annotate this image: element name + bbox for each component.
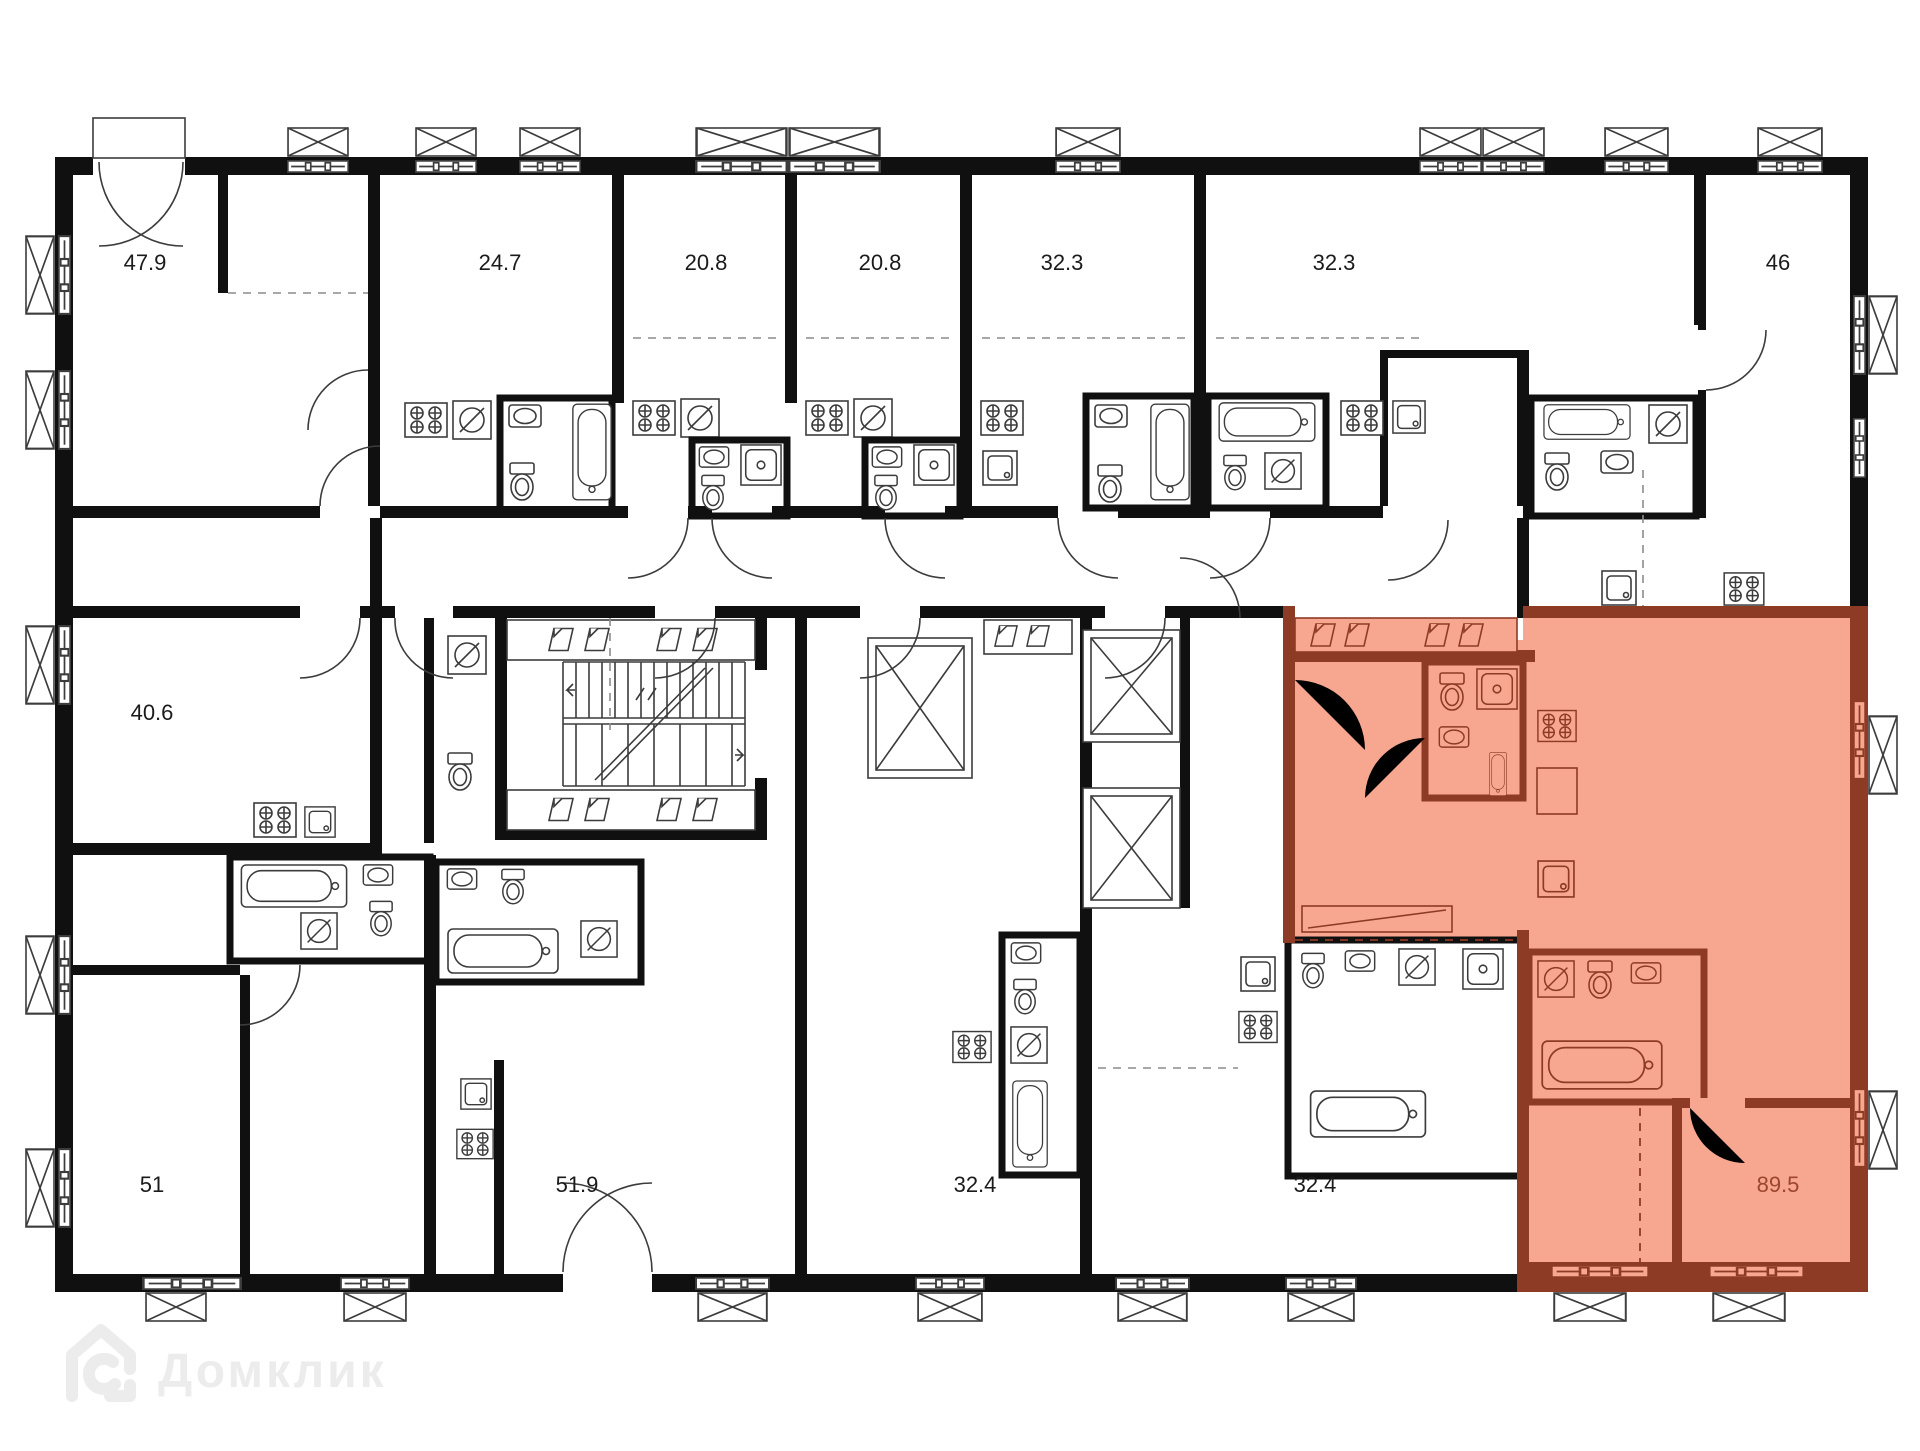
balcony-icon xyxy=(1288,1293,1354,1321)
balcony-icon xyxy=(288,128,348,156)
washer-icon xyxy=(1649,405,1687,443)
balcony-icon xyxy=(520,128,580,156)
window-icon xyxy=(789,161,880,172)
balcony-icon xyxy=(26,626,54,703)
unit-region-24-7[interactable] xyxy=(382,175,612,506)
balcony-icon xyxy=(344,1293,406,1321)
balcony-icon xyxy=(1869,296,1897,373)
unit-area-label-selected: 89.5 xyxy=(1757,1172,1800,1197)
window-icon xyxy=(1483,161,1544,172)
balcony-icon xyxy=(1869,1091,1897,1168)
floorplan-page: 47.9 24.7 20.8 20.8 32.3 32.3 46 40.6 51… xyxy=(0,0,1920,1451)
unit-region-40-6[interactable] xyxy=(71,618,382,843)
unit-area-label: 32.3 xyxy=(1041,250,1084,275)
door-arc-icon xyxy=(395,618,453,678)
balcony-icon xyxy=(1869,716,1897,793)
unit-region-51-9[interactable] xyxy=(436,855,795,1274)
unit-region-20-8-a[interactable] xyxy=(624,175,785,506)
window-icon xyxy=(59,371,70,449)
window-icon xyxy=(59,236,70,314)
window-icon xyxy=(1605,161,1668,172)
unit-region-20-8-b[interactable] xyxy=(797,175,960,506)
unit-area-label: 20.8 xyxy=(859,250,902,275)
domclick-house-icon xyxy=(72,1330,130,1396)
balcony-icon xyxy=(1554,1293,1626,1321)
balcony-icon xyxy=(416,128,476,156)
unit-region-32-4-a[interactable] xyxy=(807,618,1080,1274)
balcony-icon xyxy=(698,1293,767,1321)
watermark-text: Домклик xyxy=(158,1345,387,1398)
porch xyxy=(93,118,185,158)
bathtub-icon xyxy=(1544,405,1630,439)
window-icon xyxy=(696,1278,769,1289)
balcony-icon xyxy=(1605,128,1668,156)
unit-area-label: 47.9 xyxy=(124,250,167,275)
window-icon xyxy=(288,161,348,172)
floorplan-canvas: 47.9 24.7 20.8 20.8 32.3 32.3 46 40.6 51… xyxy=(0,0,1920,1451)
window-icon xyxy=(1758,161,1822,172)
washer-icon xyxy=(448,636,486,674)
cooktop-icon xyxy=(1724,573,1764,605)
door-arc-icon xyxy=(1210,518,1270,578)
window-icon xyxy=(1854,419,1865,477)
balcony-icon xyxy=(26,236,54,313)
toilet-icon xyxy=(448,753,472,790)
balcony-icon xyxy=(790,128,880,156)
unit-area-label: 46 xyxy=(1766,250,1790,275)
balcony-icon xyxy=(1056,128,1120,156)
window-icon xyxy=(1056,161,1120,172)
unit-area-label: 51.9 xyxy=(556,1172,599,1197)
door-arc-icon xyxy=(885,518,945,578)
unit-area-label: 32.4 xyxy=(1294,1172,1337,1197)
toilet-icon xyxy=(1545,453,1569,490)
balcony-icon xyxy=(1758,128,1822,156)
unit-region-51[interactable] xyxy=(71,855,424,1274)
door-arc-icon xyxy=(1058,518,1118,578)
balcony-icon xyxy=(1713,1293,1785,1321)
window-icon xyxy=(341,1278,409,1289)
window-icon xyxy=(1420,161,1481,172)
balcony-icon xyxy=(26,936,54,1013)
unit-area-label: 32.3 xyxy=(1313,250,1356,275)
window-icon xyxy=(1116,1278,1189,1289)
stairs-icon xyxy=(507,620,755,830)
window-icon xyxy=(143,1278,240,1289)
unit-area-label: 32.4 xyxy=(954,1172,997,1197)
window-icon xyxy=(696,161,787,172)
unit-area-label: 24.7 xyxy=(479,250,522,275)
sink-icon xyxy=(1601,451,1633,473)
balcony-icon xyxy=(146,1293,206,1321)
sink-icon xyxy=(1602,571,1636,605)
balcony-icon xyxy=(697,128,787,156)
window-icon xyxy=(416,161,476,172)
balcony-icon xyxy=(26,371,54,448)
balcony-icon xyxy=(1483,128,1544,156)
balcony-icon xyxy=(26,1149,54,1226)
window-icon xyxy=(59,626,70,704)
unit-region-46[interactable] xyxy=(1706,175,1850,506)
balcony-icon xyxy=(1118,1293,1187,1321)
balcony-icon xyxy=(918,1293,982,1321)
unit-region-32-3-a[interactable] xyxy=(972,175,1194,506)
window-icon xyxy=(520,161,580,172)
balcony-icon xyxy=(1420,128,1481,156)
door-arc-icon xyxy=(628,518,688,578)
unit-area-label: 51 xyxy=(140,1172,164,1197)
window-icon xyxy=(916,1278,984,1289)
unit-region-47-9[interactable] xyxy=(71,175,368,506)
window-icon xyxy=(59,936,70,1014)
window-icon xyxy=(1854,296,1865,374)
unit-area-label: 20.8 xyxy=(685,250,728,275)
door-arc-icon xyxy=(1388,520,1448,580)
watermark: Домклик xyxy=(72,1330,387,1398)
unit-area-label: 40.6 xyxy=(131,700,174,725)
window-icon xyxy=(59,1149,70,1227)
door-arc-icon xyxy=(712,518,772,578)
unit-region-32-3-b[interactable] xyxy=(1206,175,1517,506)
